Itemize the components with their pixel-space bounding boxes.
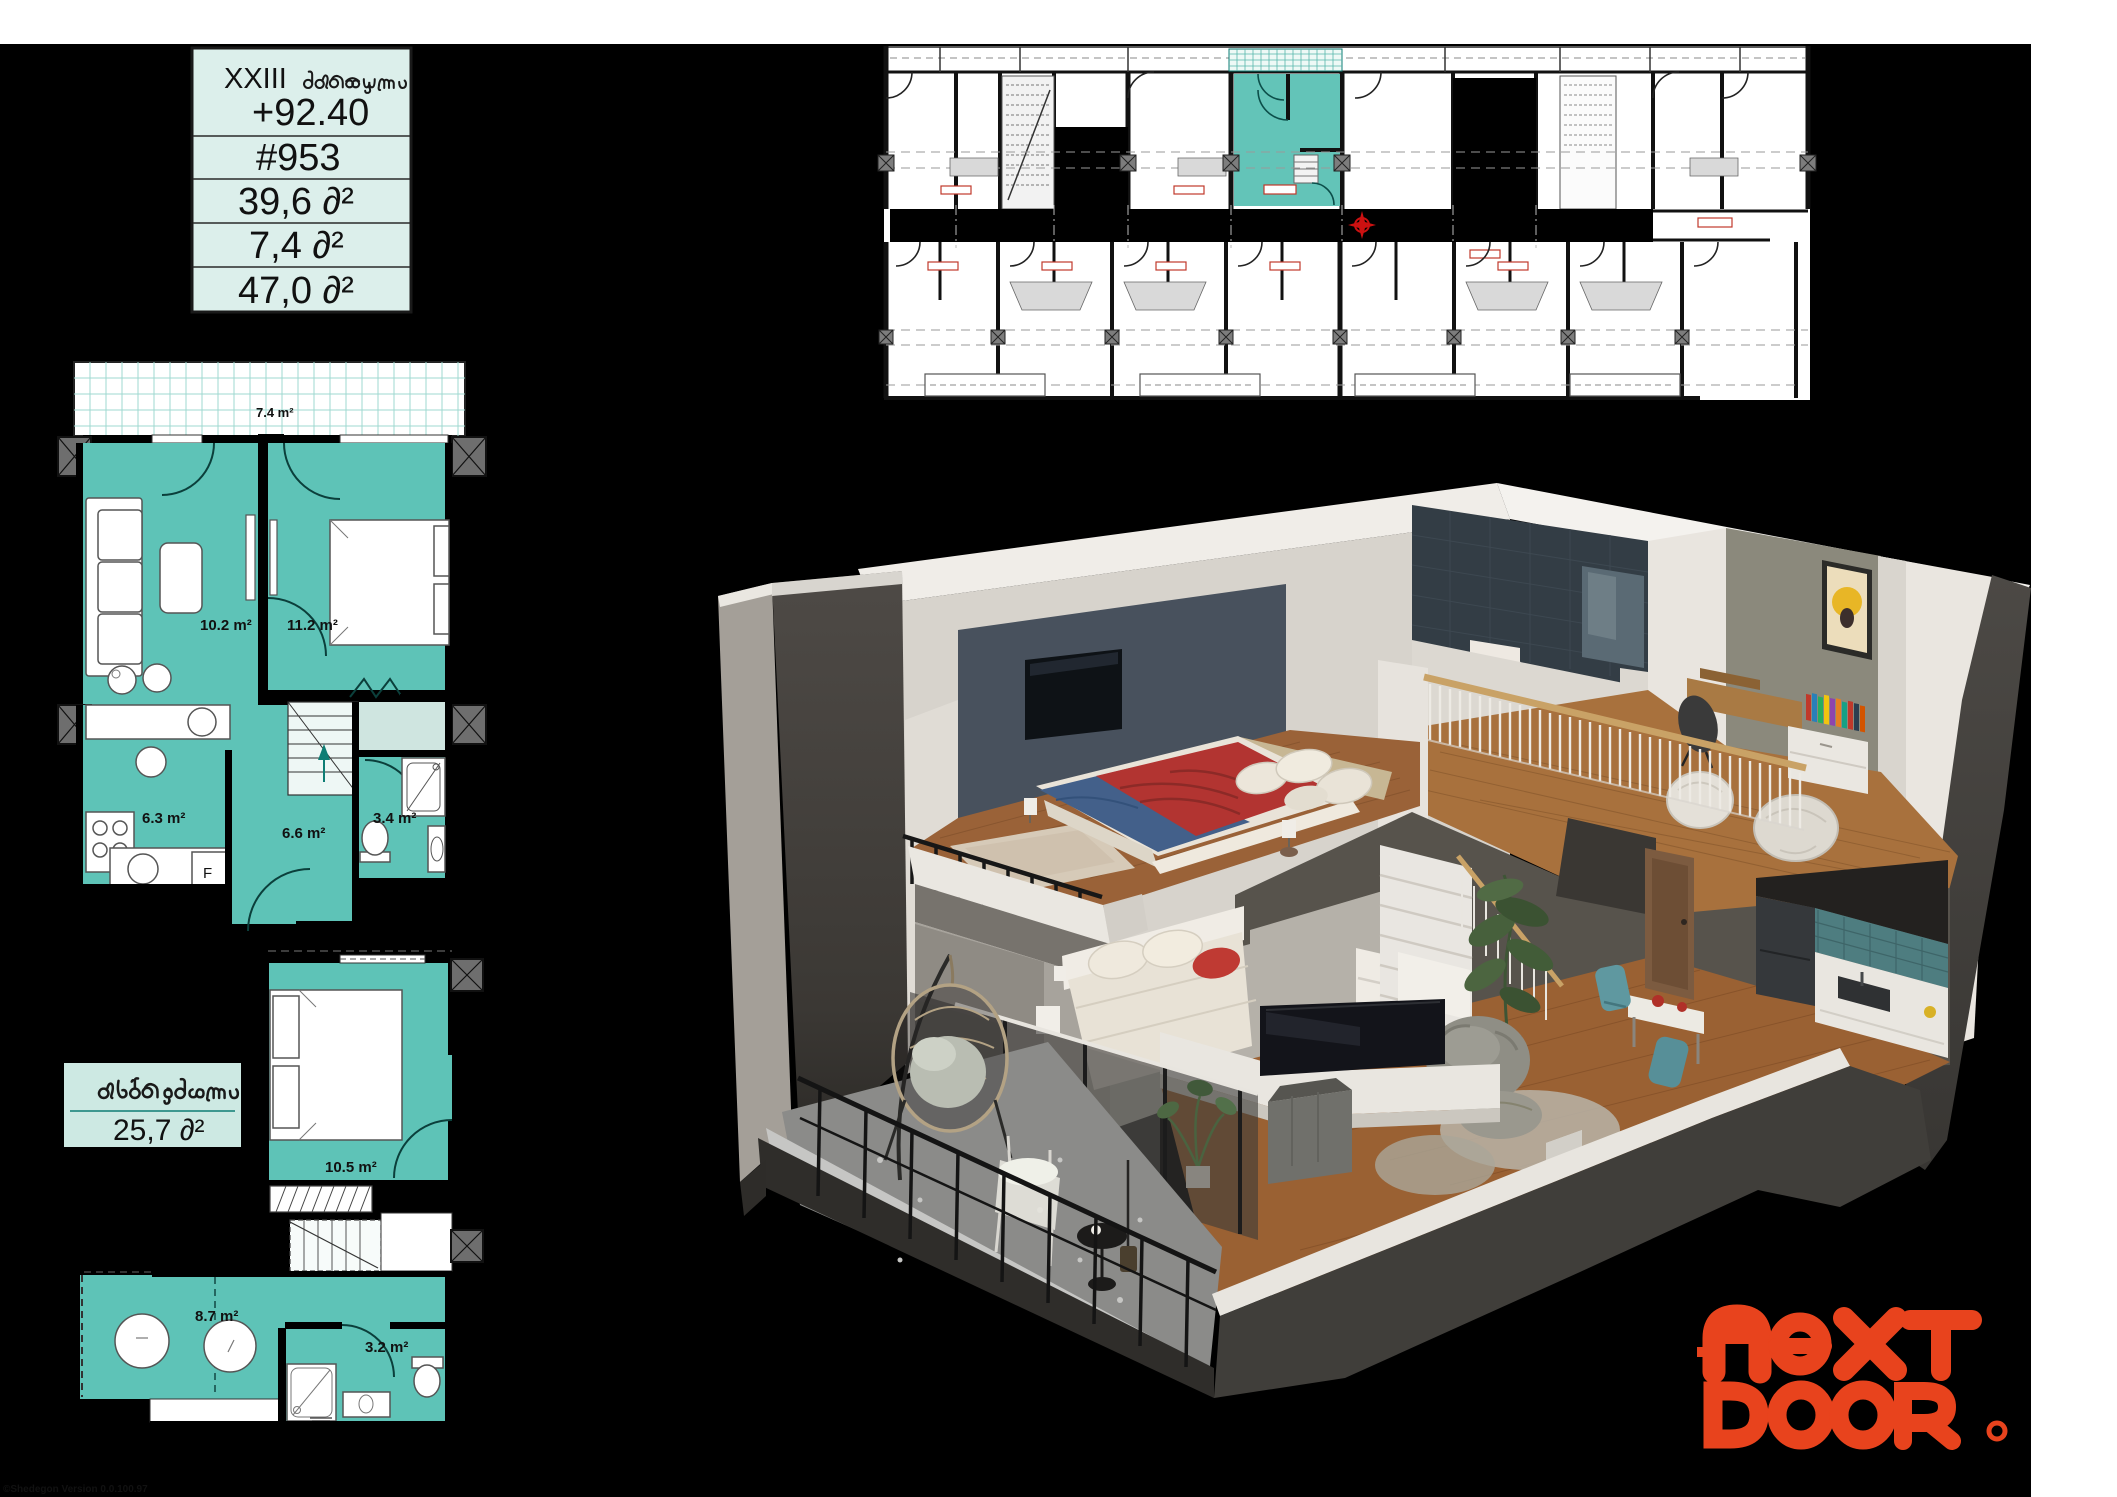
svg-text:XXIII: XXIII <box>224 63 287 95</box>
svg-text:10.2 m²: 10.2 m² <box>200 617 252 634</box>
svg-text:F: F <box>203 865 212 882</box>
svg-text:7,4 ∂²: 7,4 ∂² <box>249 225 344 267</box>
svg-text:25,7 ∂²: 25,7 ∂² <box>113 1114 205 1147</box>
svg-text:8.7 m²: 8.7 m² <box>195 1308 238 1325</box>
svg-text:10.5 m²: 10.5 m² <box>325 1159 377 1176</box>
svg-text:3.2 m²: 3.2 m² <box>365 1339 408 1356</box>
svg-text:©Shedegon Version 0.0.100.97: ©Shedegon Version 0.0.100.97 <box>3 1484 148 1495</box>
svg-text:6.3 m²: 6.3 m² <box>142 810 185 827</box>
svg-text:47,0 ∂²: 47,0 ∂² <box>238 270 354 312</box>
svg-text:11.2 m²: 11.2 m² <box>287 617 338 634</box>
svg-text:39,6 ∂²: 39,6 ∂² <box>238 181 354 223</box>
svg-text:+92.40: +92.40 <box>252 92 369 134</box>
svg-text:6.6 m²: 6.6 m² <box>282 825 325 842</box>
svg-text:3.4 m²: 3.4 m² <box>373 810 416 827</box>
svg-text:#953: #953 <box>256 137 341 179</box>
svg-text:7.4 m²: 7.4 m² <box>256 405 294 420</box>
